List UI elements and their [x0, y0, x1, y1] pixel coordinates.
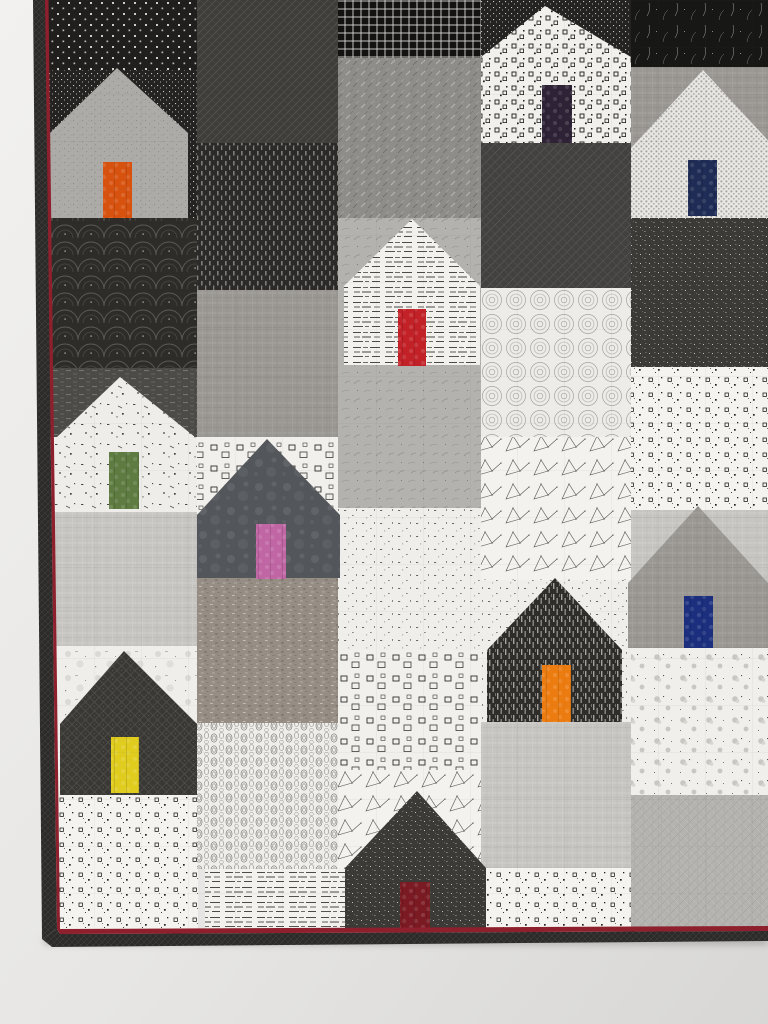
photo-canvas [0, 0, 768, 1024]
quilt-photo [0, 0, 768, 1024]
quilting-stitch-grid [44, 0, 768, 934]
